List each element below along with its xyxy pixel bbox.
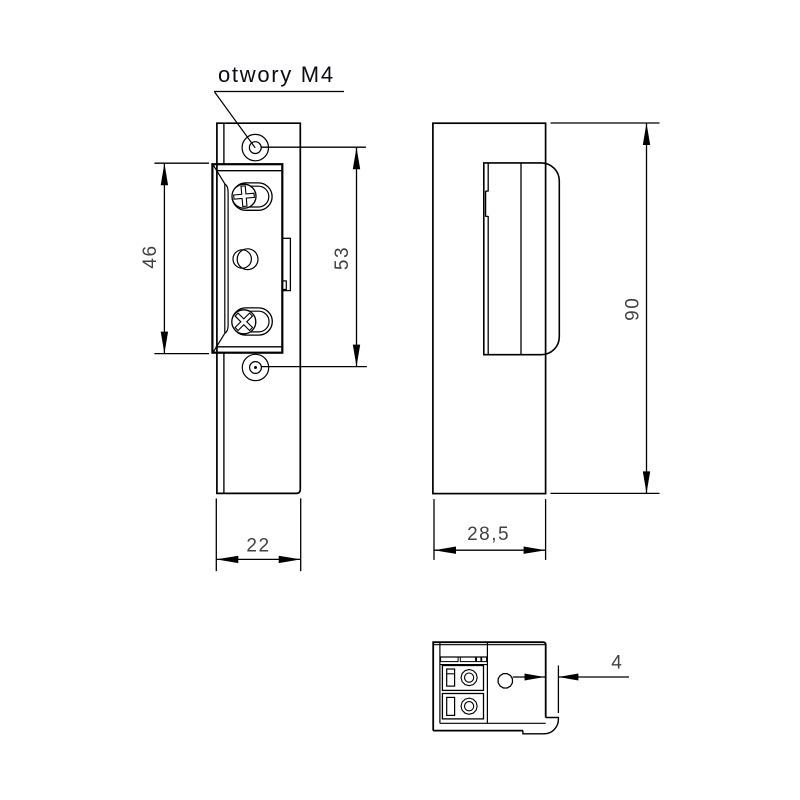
svg-text:22: 22 xyxy=(246,536,270,557)
svg-text:otwory M4: otwory M4 xyxy=(218,62,335,87)
svg-text:90: 90 xyxy=(622,297,643,321)
svg-text:4: 4 xyxy=(611,653,623,674)
svg-text:28,5: 28,5 xyxy=(467,524,510,545)
svg-text:46: 46 xyxy=(140,244,161,268)
svg-text:53: 53 xyxy=(332,246,353,270)
